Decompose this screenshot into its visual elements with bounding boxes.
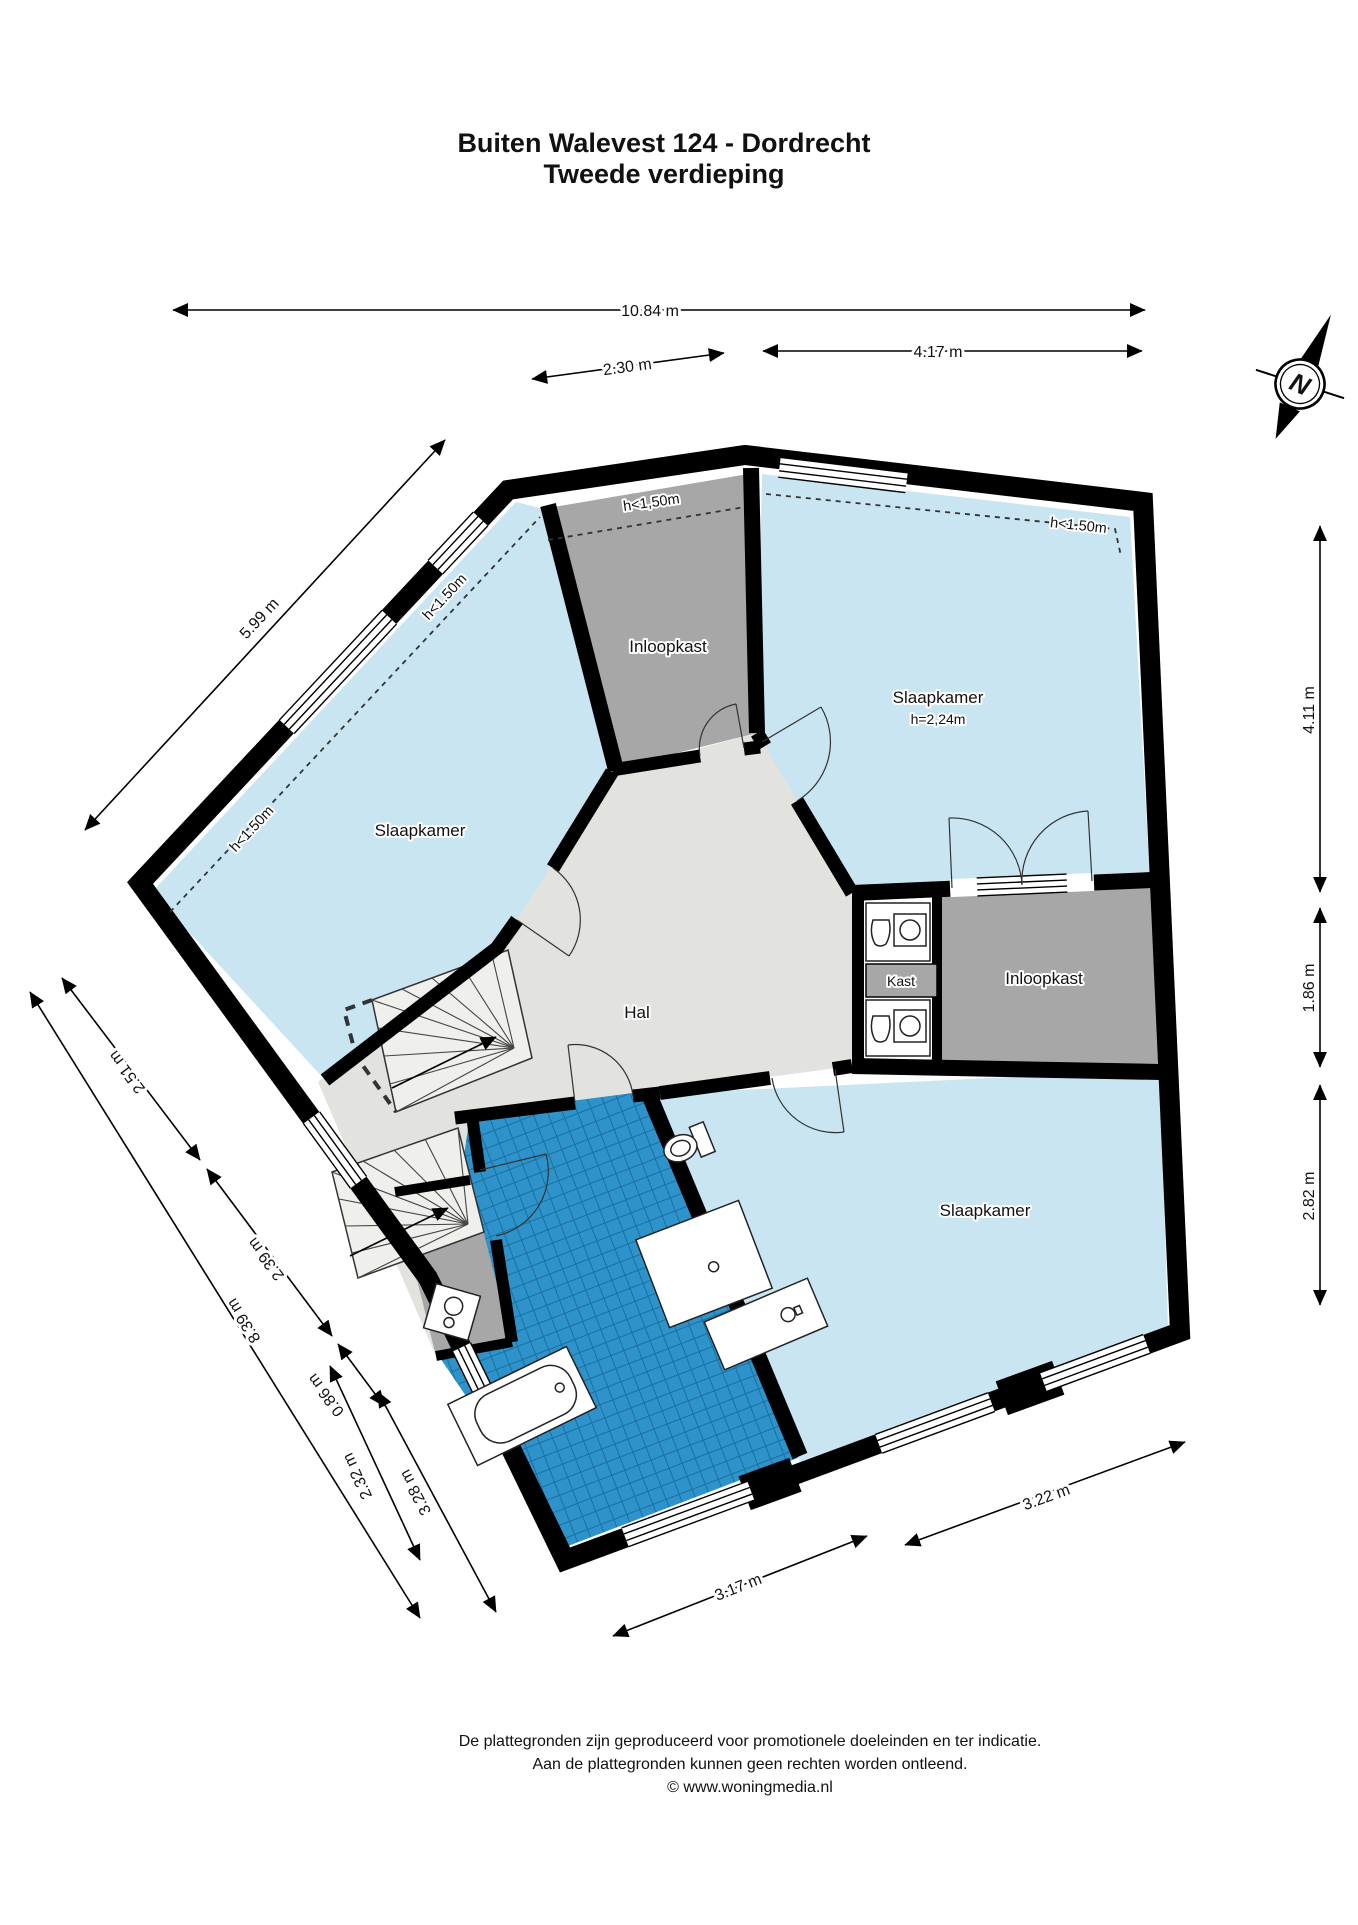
footer: De plattegronden zijn geproduceerd voor … [459, 1733, 1042, 1796]
dim-right-bottom: 2.82 m [1301, 1172, 1318, 1221]
room-label-hal: Hal [624, 1003, 650, 1022]
room-label-inloopkast-top: Inloopkast [629, 637, 707, 656]
dim-right-middle: 1.86 m [1301, 964, 1318, 1013]
floorplan-page: Buiten Walevest 124 - Dordrecht Tweede v… [0, 0, 1358, 1920]
room-height-slaapkamer-top-right: h=2,24m [911, 711, 966, 727]
dim-right-top: 4.11 m [1301, 686, 1318, 734]
dim-left-seg-5: 2.32 m [340, 1450, 376, 1502]
dim-left-seg-3: 0.86 m [305, 1370, 348, 1419]
dim-upper-left-wall: 5.99 m [237, 595, 283, 642]
room-label-inloopkast-right: Inloopkast [1005, 969, 1083, 988]
dim-bottom-right: 3.22 m [1021, 1481, 1073, 1514]
washer-icon [866, 1000, 930, 1056]
wall-inloopkast-right [751, 468, 757, 733]
footer-line-2: Aan de plattegronden kunnen geen rechten… [532, 1756, 967, 1773]
page-subtitle: Tweede verdieping [543, 159, 784, 189]
room-label-slaapkamer-top-right: Slaapkamer [893, 688, 984, 707]
washer-icon [866, 903, 930, 961]
dim-left-total: 8.39 m [224, 1295, 264, 1345]
room-label-slaapkamer-bottom: Slaapkamer [940, 1201, 1031, 1220]
page-title: Buiten Walevest 124 - Dordrecht [457, 128, 870, 158]
footer-line-3: © www.woningmedia.nl [667, 1779, 833, 1796]
dim-left-seg-2: 2.39 m [245, 1234, 288, 1283]
dim-bottom-left: 3.17 m [712, 1571, 764, 1605]
compass-icon: N [1234, 296, 1358, 458]
footer-line-1: De plattegronden zijn geproduceerd voor … [459, 1733, 1042, 1750]
dim-top-right: 4.17 m [914, 344, 963, 361]
dim-top-left: 2.30 m [602, 356, 653, 379]
wall-inloopkast-right-bottom [852, 1066, 1160, 1072]
dim-left-seg-1: 2.51 m [106, 1047, 149, 1096]
floorplan-canvas: Buiten Walevest 124 - Dordrecht Tweede v… [0, 0, 1358, 1920]
dim-top-total: 10.84 m [621, 303, 679, 320]
room-label-slaapkamer-left: Slaapkamer [375, 821, 466, 840]
room-label-kast: Kast [887, 973, 915, 989]
dim-left-seg-4: 3.28 m [397, 1467, 435, 1518]
